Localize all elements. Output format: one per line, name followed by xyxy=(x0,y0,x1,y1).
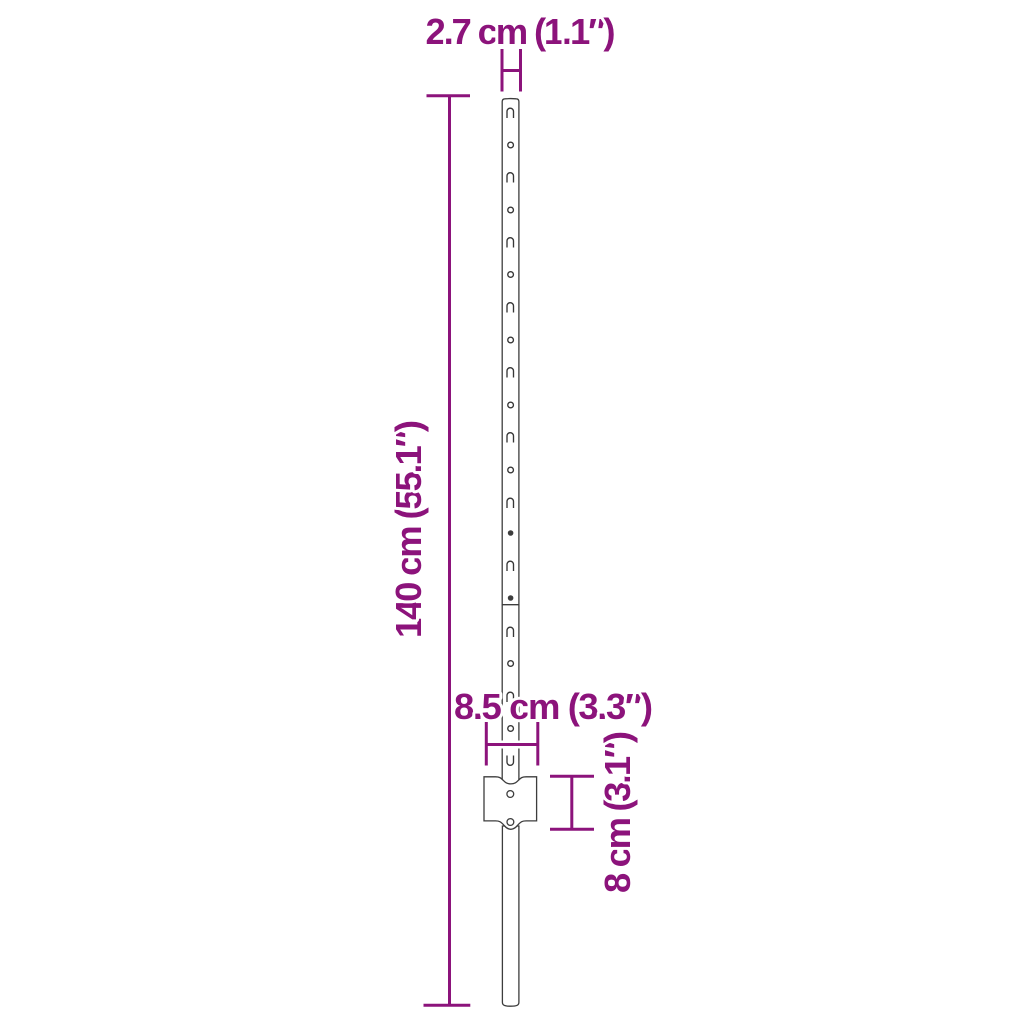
svg-text:140 cm (55.1″): 140 cm (55.1″) xyxy=(388,420,429,638)
svg-text:8 cm (3.1″): 8 cm (3.1″) xyxy=(597,731,638,893)
svg-text:8.5 cm (3.3″): 8.5 cm (3.3″) xyxy=(454,686,653,727)
svg-text:2.7 cm (1.1″): 2.7 cm (1.1″) xyxy=(426,11,616,52)
